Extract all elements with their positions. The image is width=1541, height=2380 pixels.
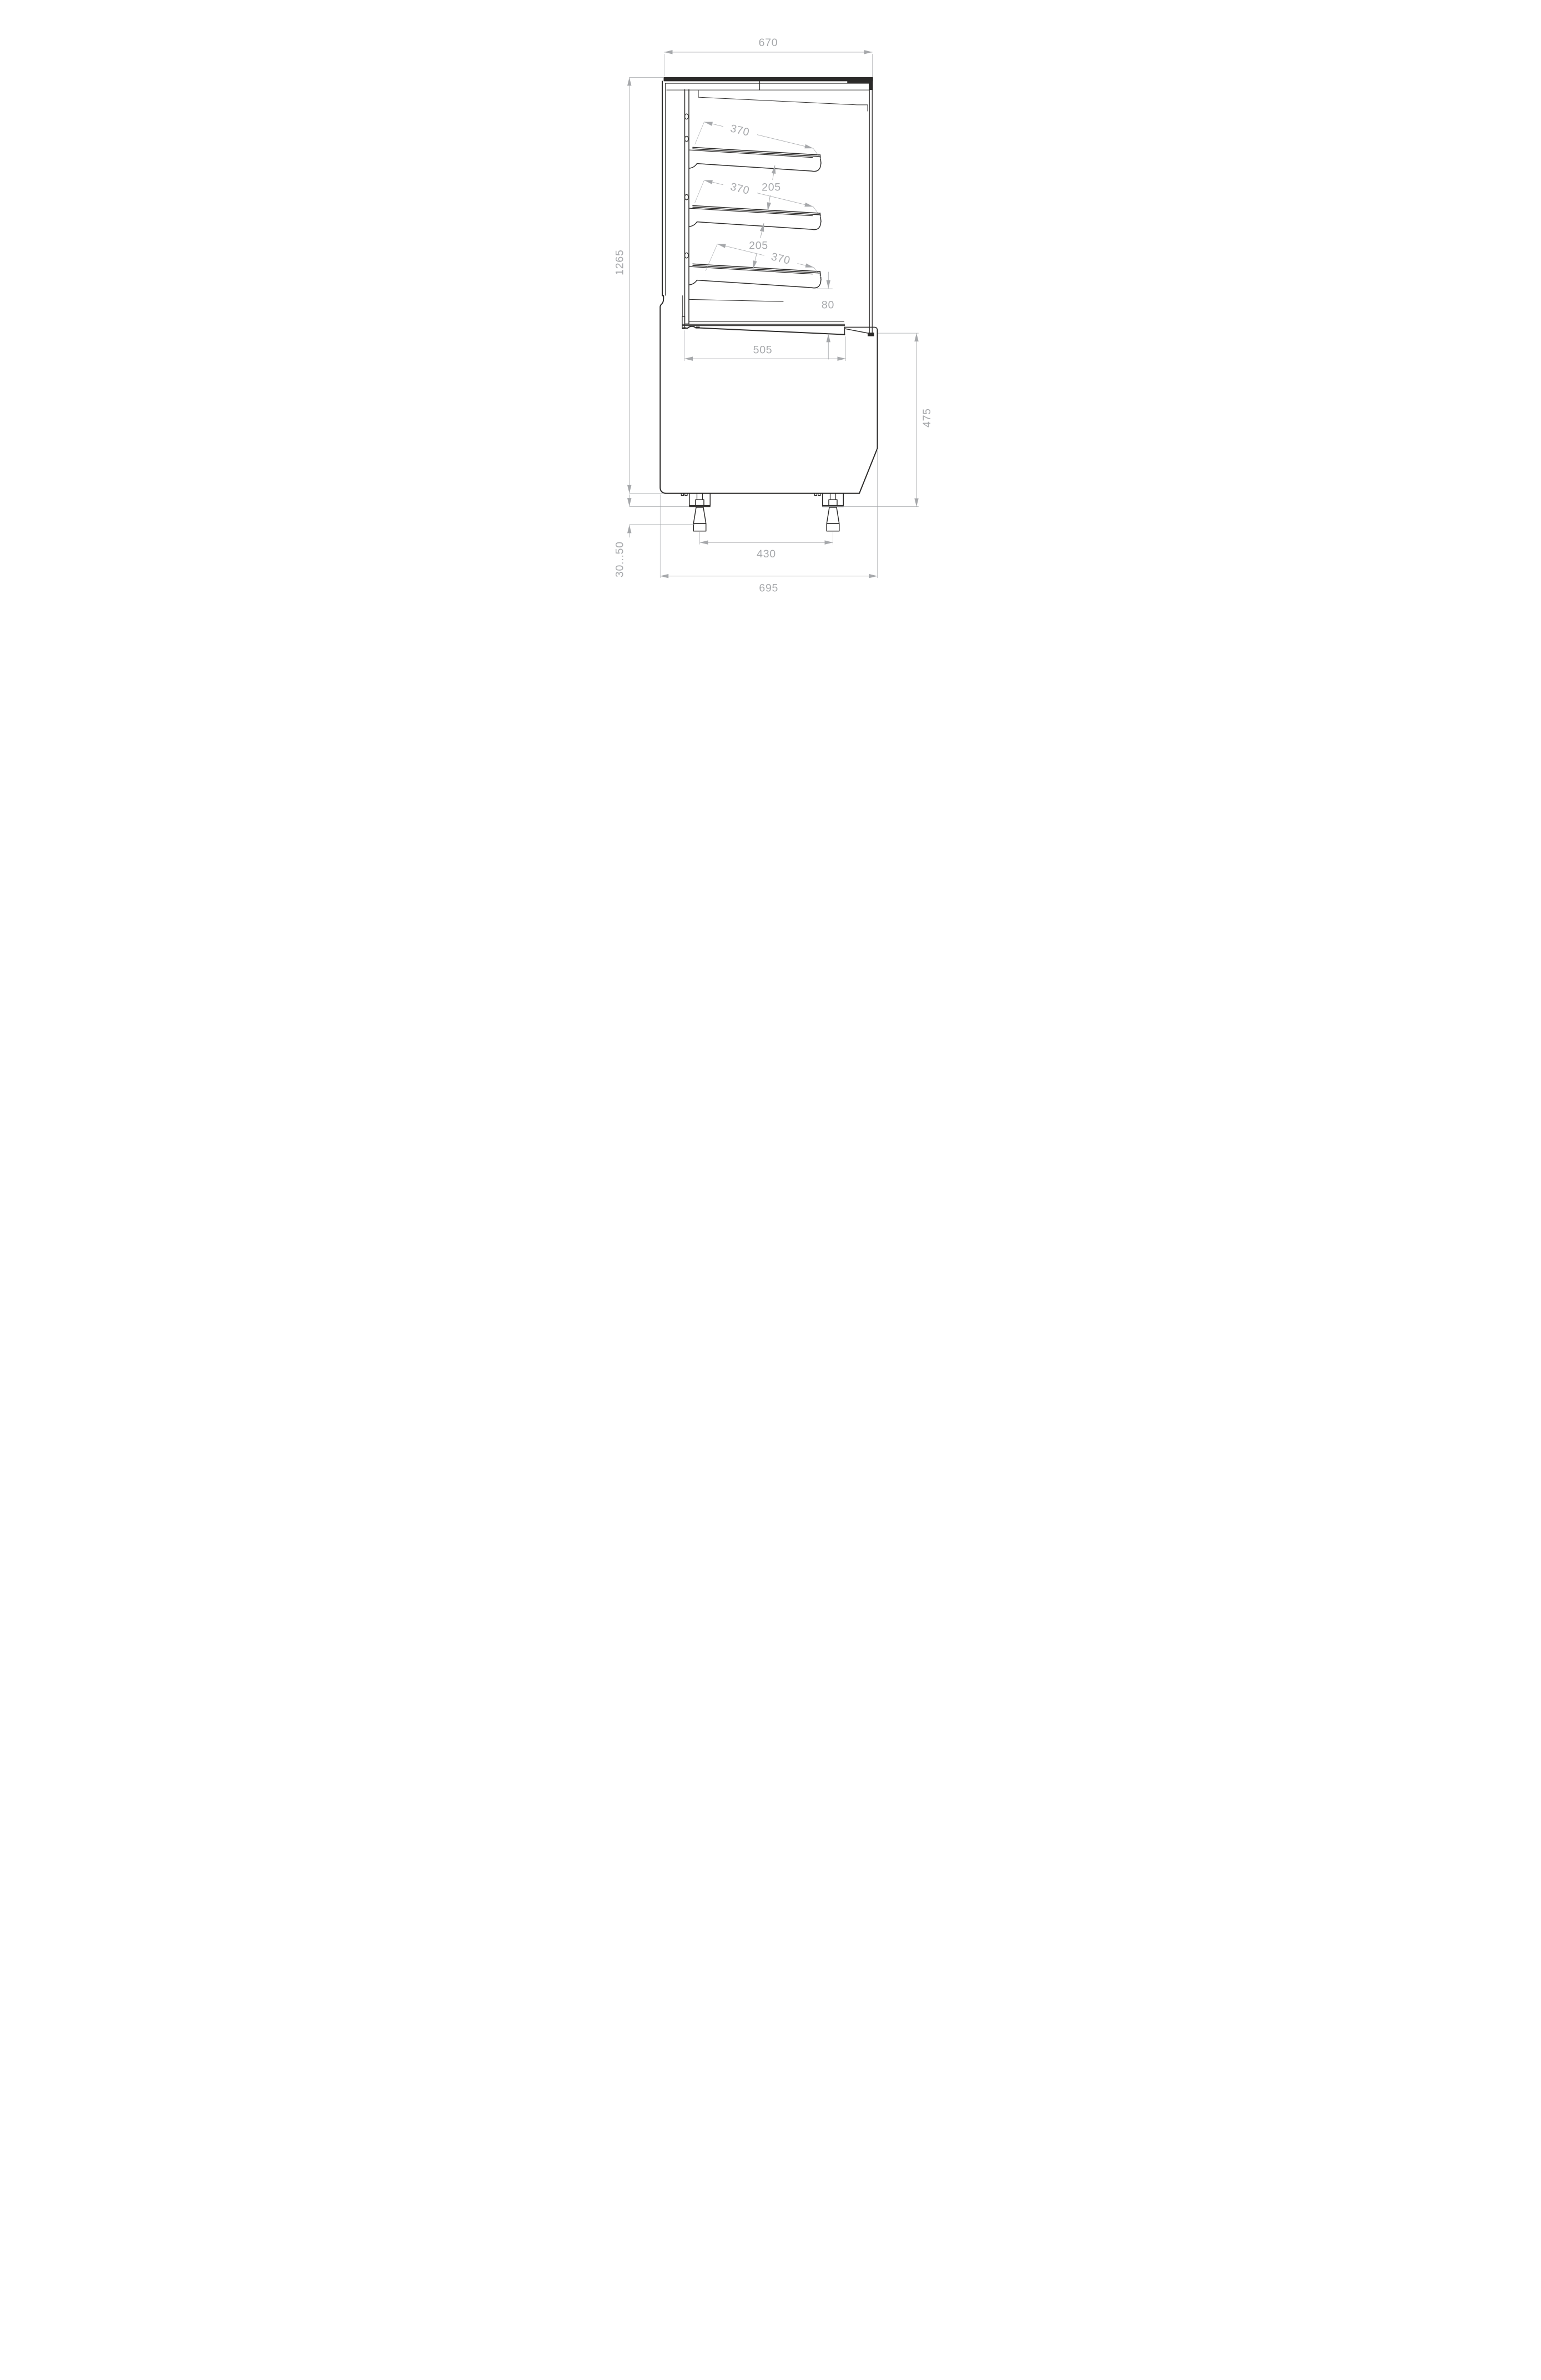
dim-label-370: 370 bbox=[770, 250, 792, 267]
back-wall bbox=[660, 81, 665, 493]
column-hole bbox=[685, 136, 689, 142]
dim-505: 505 bbox=[684, 330, 846, 361]
display-deck bbox=[683, 299, 878, 336]
canopy-top-bar bbox=[664, 77, 873, 82]
technical-drawing: 670 1265 370 205 370 205 bbox=[578, 0, 963, 595]
foot-right bbox=[814, 494, 843, 531]
shelf-2 bbox=[689, 205, 822, 229]
foot-cone bbox=[827, 507, 839, 524]
dim-label-205: 205 bbox=[762, 182, 781, 194]
drawing-page: 670 1265 370 205 370 205 bbox=[578, 0, 963, 595]
column-hole bbox=[685, 114, 689, 119]
front-glass bbox=[869, 78, 872, 333]
dim-370-shelf2: 370 bbox=[695, 180, 821, 218]
dim-label-30-50: 30...50 bbox=[614, 541, 626, 577]
dim-label-695: 695 bbox=[759, 582, 778, 595]
dim-370-shelf1: 370 bbox=[695, 122, 821, 159]
shelf-1 bbox=[689, 147, 822, 171]
column-hole bbox=[685, 194, 689, 200]
dim-foot-range: 30...50 bbox=[614, 495, 696, 577]
dim-670: 670 bbox=[664, 37, 873, 77]
dim-label-430: 430 bbox=[757, 548, 776, 560]
dim-205-gap1: 205 bbox=[762, 165, 781, 211]
deck-sheet bbox=[683, 326, 844, 335]
dim-label-370: 370 bbox=[729, 122, 751, 139]
dim-205-gap2: 205 bbox=[749, 223, 768, 269]
shelf-column bbox=[682, 89, 689, 329]
dim-430: 430 bbox=[700, 532, 833, 560]
chamfer-corner bbox=[859, 449, 878, 494]
dim-label-205: 205 bbox=[749, 240, 768, 252]
canopy-ceiling-panel bbox=[698, 90, 868, 111]
dim-695: 695 bbox=[660, 449, 877, 595]
shelf-bracket bbox=[689, 222, 821, 230]
dim-label-670: 670 bbox=[759, 37, 778, 49]
shelf-bracket bbox=[689, 280, 821, 288]
dim-1265: 1265 bbox=[614, 77, 664, 493]
foot-nut bbox=[696, 500, 704, 506]
dim-label-370: 370 bbox=[729, 180, 751, 197]
foot-left bbox=[681, 494, 710, 531]
glass-foot-block bbox=[868, 333, 874, 336]
canopy bbox=[664, 77, 873, 111]
foot-nut bbox=[829, 500, 837, 506]
foot-base bbox=[693, 524, 706, 531]
column-hole bbox=[685, 253, 689, 258]
dim-80: 80 bbox=[812, 272, 835, 360]
shelf-bracket bbox=[689, 164, 821, 172]
dim-label-475: 475 bbox=[921, 408, 933, 427]
dim-label-80: 80 bbox=[822, 299, 834, 311]
shelf-3 bbox=[689, 264, 822, 288]
dim-label-1265: 1265 bbox=[614, 249, 626, 275]
foot-cone bbox=[693, 507, 706, 524]
dim-label-505: 505 bbox=[753, 344, 773, 356]
foot-base bbox=[827, 524, 839, 531]
